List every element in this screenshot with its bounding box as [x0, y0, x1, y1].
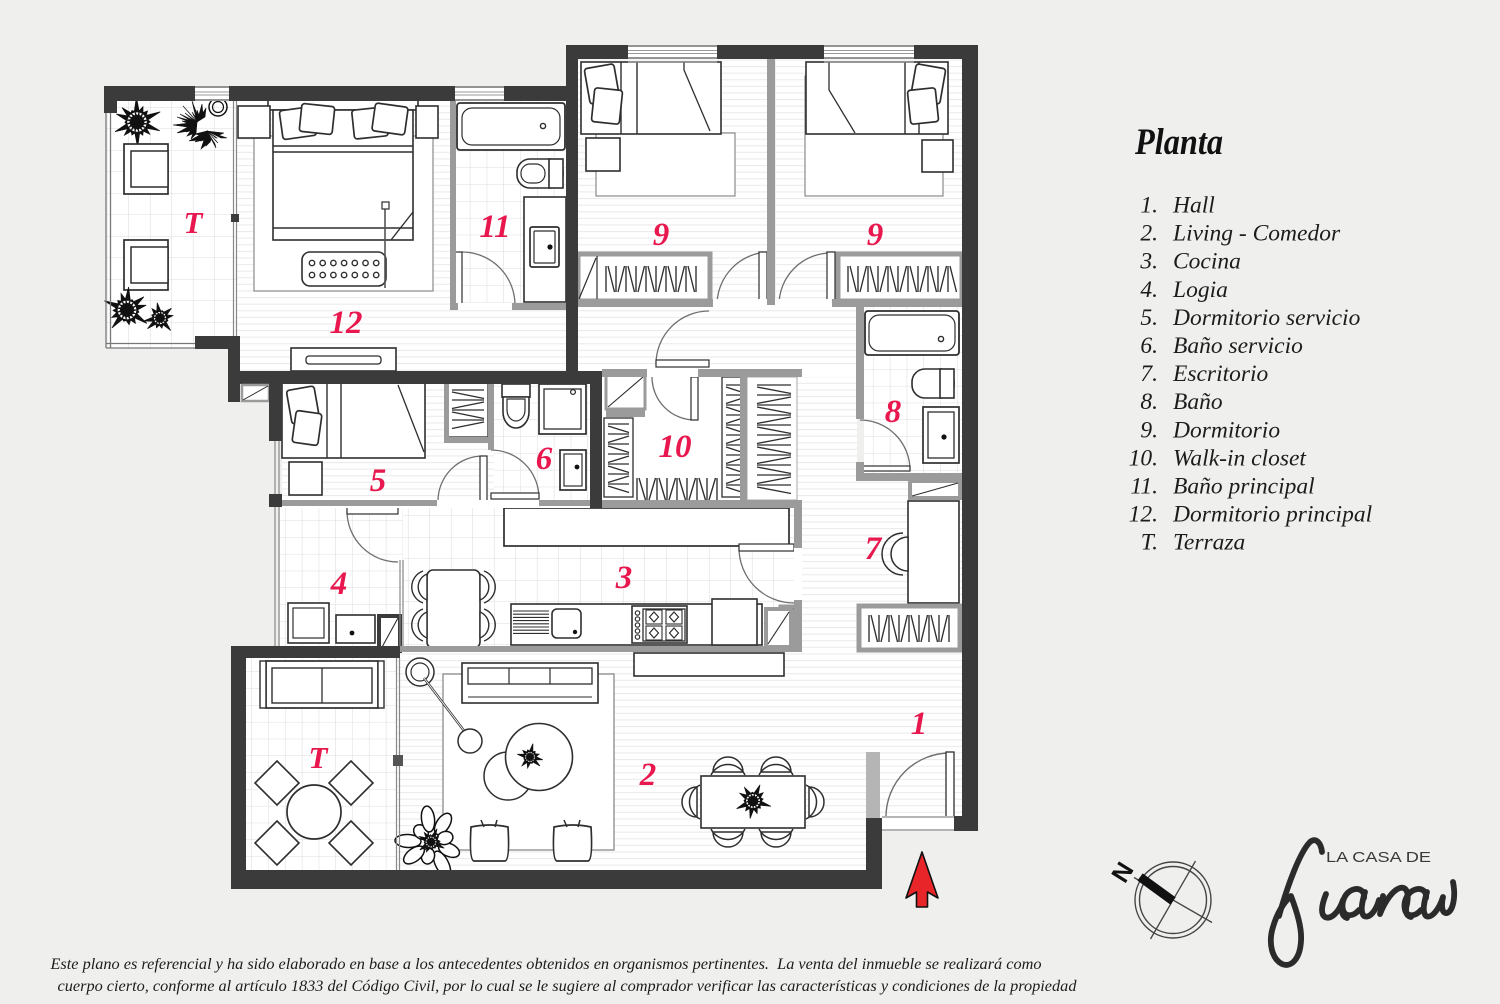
svg-text:12.: 12.	[1129, 502, 1158, 528]
svg-text:Este plano es referencial y ha: Este plano es referencial y ha sido elab…	[49, 954, 1041, 973]
svg-text:Baño servicio: Baño servicio	[1173, 333, 1303, 359]
svg-text:6.: 6.	[1140, 333, 1158, 359]
svg-text:12: 12	[330, 305, 363, 341]
svg-text:Hall: Hall	[1172, 193, 1215, 219]
svg-text:T: T	[184, 205, 204, 240]
svg-text:Dormitorio servicio: Dormitorio servicio	[1172, 305, 1361, 331]
svg-text:10.: 10.	[1129, 445, 1158, 471]
svg-text:Dormitorio principal: Dormitorio principal	[1172, 502, 1373, 528]
svg-text:6: 6	[536, 441, 553, 477]
svg-text:1.: 1.	[1140, 193, 1158, 219]
svg-text:4.: 4.	[1140, 277, 1158, 303]
svg-text:3: 3	[615, 560, 633, 596]
svg-text:2: 2	[639, 757, 657, 793]
svg-text:9: 9	[653, 217, 670, 253]
svg-text:Logia: Logia	[1172, 277, 1228, 303]
svg-text:11.: 11.	[1130, 474, 1158, 500]
svg-text:10: 10	[659, 429, 692, 465]
svg-text:1: 1	[911, 706, 928, 742]
svg-text:Baño principal: Baño principal	[1173, 474, 1315, 500]
svg-text:9.: 9.	[1140, 417, 1158, 443]
svg-text:T: T	[309, 740, 329, 775]
svg-text:9: 9	[867, 217, 884, 253]
svg-text:5.: 5.	[1140, 305, 1158, 331]
svg-text:11: 11	[479, 209, 510, 245]
svg-text:8.: 8.	[1140, 389, 1158, 415]
svg-text:Escritorio: Escritorio	[1172, 361, 1269, 387]
svg-text:Walk-in closet: Walk-in closet	[1173, 445, 1306, 471]
svg-text:Living - Comedor: Living - Comedor	[1172, 221, 1341, 247]
svg-text:Baño: Baño	[1173, 389, 1223, 415]
svg-text:Cocina: Cocina	[1173, 249, 1241, 275]
svg-text:7.: 7.	[1140, 361, 1158, 387]
svg-text:3.: 3.	[1139, 249, 1158, 275]
svg-text:7: 7	[865, 531, 883, 567]
svg-text:2.: 2.	[1140, 221, 1158, 247]
svg-text:LA CASA DE: LA CASA DE	[1326, 849, 1431, 866]
svg-text:5: 5	[370, 463, 387, 499]
svg-text:4: 4	[330, 566, 348, 602]
svg-text:T.: T.	[1141, 530, 1158, 556]
svg-text:Dormitorio: Dormitorio	[1172, 417, 1280, 443]
svg-text:Terraza: Terraza	[1173, 530, 1245, 556]
svg-text:Planta: Planta	[1134, 122, 1223, 163]
svg-text:8: 8	[885, 394, 902, 430]
svg-text:cuerpo cierto, conforme al art: cuerpo cierto, conforme al artículo 1833…	[58, 976, 1078, 995]
